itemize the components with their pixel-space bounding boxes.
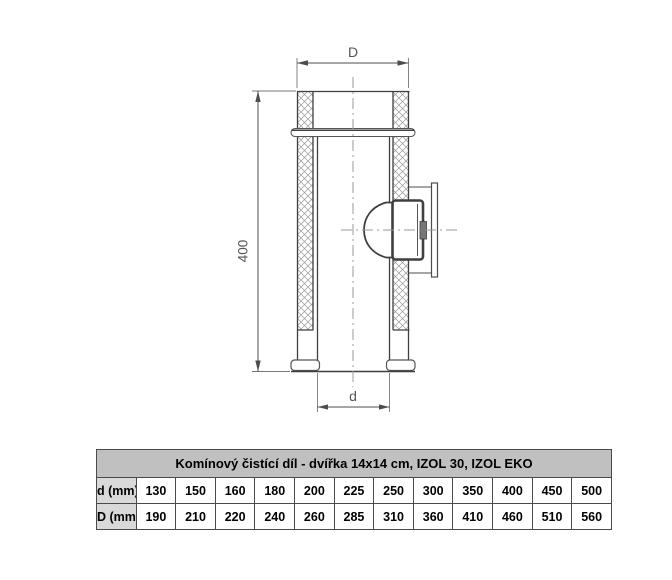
bottom-rim-right	[387, 360, 416, 371]
spec-table-title: Komínový čistící díl - dvířka 14x14 cm, …	[97, 450, 612, 478]
value-cell: 250	[374, 478, 414, 504]
value-cell: 310	[374, 504, 414, 530]
dim-bottom-arrow-right	[379, 404, 390, 409]
value-cell: 285	[334, 504, 374, 530]
value-cell: 130	[136, 478, 176, 504]
row-label-cell: D (mm)	[97, 504, 137, 530]
spec-row: D (mm)1902102202402602853103604104605105…	[97, 504, 612, 530]
spec-table: Komínový čistící díl - dvířka 14x14 cm, …	[96, 449, 612, 530]
spec-table-body: d (mm)1301501601802002252503003504004505…	[97, 478, 612, 530]
value-cell: 210	[176, 504, 216, 530]
dim-bottom-arrow-left	[318, 404, 329, 409]
value-cell: 500	[572, 478, 612, 504]
catalog-page: D 400 d Komínový čistící díl - dvířka 14…	[0, 0, 672, 580]
value-cell: 400	[493, 478, 533, 504]
value-cell: 300	[413, 478, 453, 504]
bottom-rim-left	[291, 360, 320, 371]
value-cell: 350	[453, 478, 493, 504]
value-cell: 200	[295, 478, 335, 504]
value-cell: 240	[255, 504, 295, 530]
value-cell: 190	[136, 504, 176, 530]
value-cell: 410	[453, 504, 493, 530]
value-cell: 220	[215, 504, 255, 530]
value-cell: 180	[255, 478, 295, 504]
dim-left-arrow-top	[255, 91, 260, 102]
value-cell: 150	[176, 478, 216, 504]
value-cell: 460	[493, 504, 533, 530]
dim-bottom-label: d	[349, 388, 357, 404]
dim-left-arrow-bottom	[255, 361, 260, 372]
value-cell: 360	[413, 504, 453, 530]
spec-row: d (mm)1301501601802002252503003504004505…	[97, 478, 612, 504]
dim-top-arrow-left	[297, 60, 308, 65]
value-cell: 160	[215, 478, 255, 504]
insulation-left	[297, 91, 313, 330]
spec-title-row: Komínový čistící díl - dvířka 14x14 cm, …	[97, 450, 612, 478]
value-cell: 225	[334, 478, 374, 504]
value-cell: 260	[295, 504, 335, 530]
value-cell: 510	[532, 504, 572, 530]
value-cell: 560	[572, 504, 612, 530]
value-cell: 450	[532, 478, 572, 504]
technical-diagram: D 400 d	[0, 0, 672, 445]
dim-top-label: D	[348, 44, 358, 60]
dim-top-arrow-right	[398, 60, 409, 65]
row-label-cell: d (mm)	[97, 478, 137, 504]
dim-left-extensions	[252, 91, 296, 372]
dim-left-label: 400	[236, 240, 251, 263]
